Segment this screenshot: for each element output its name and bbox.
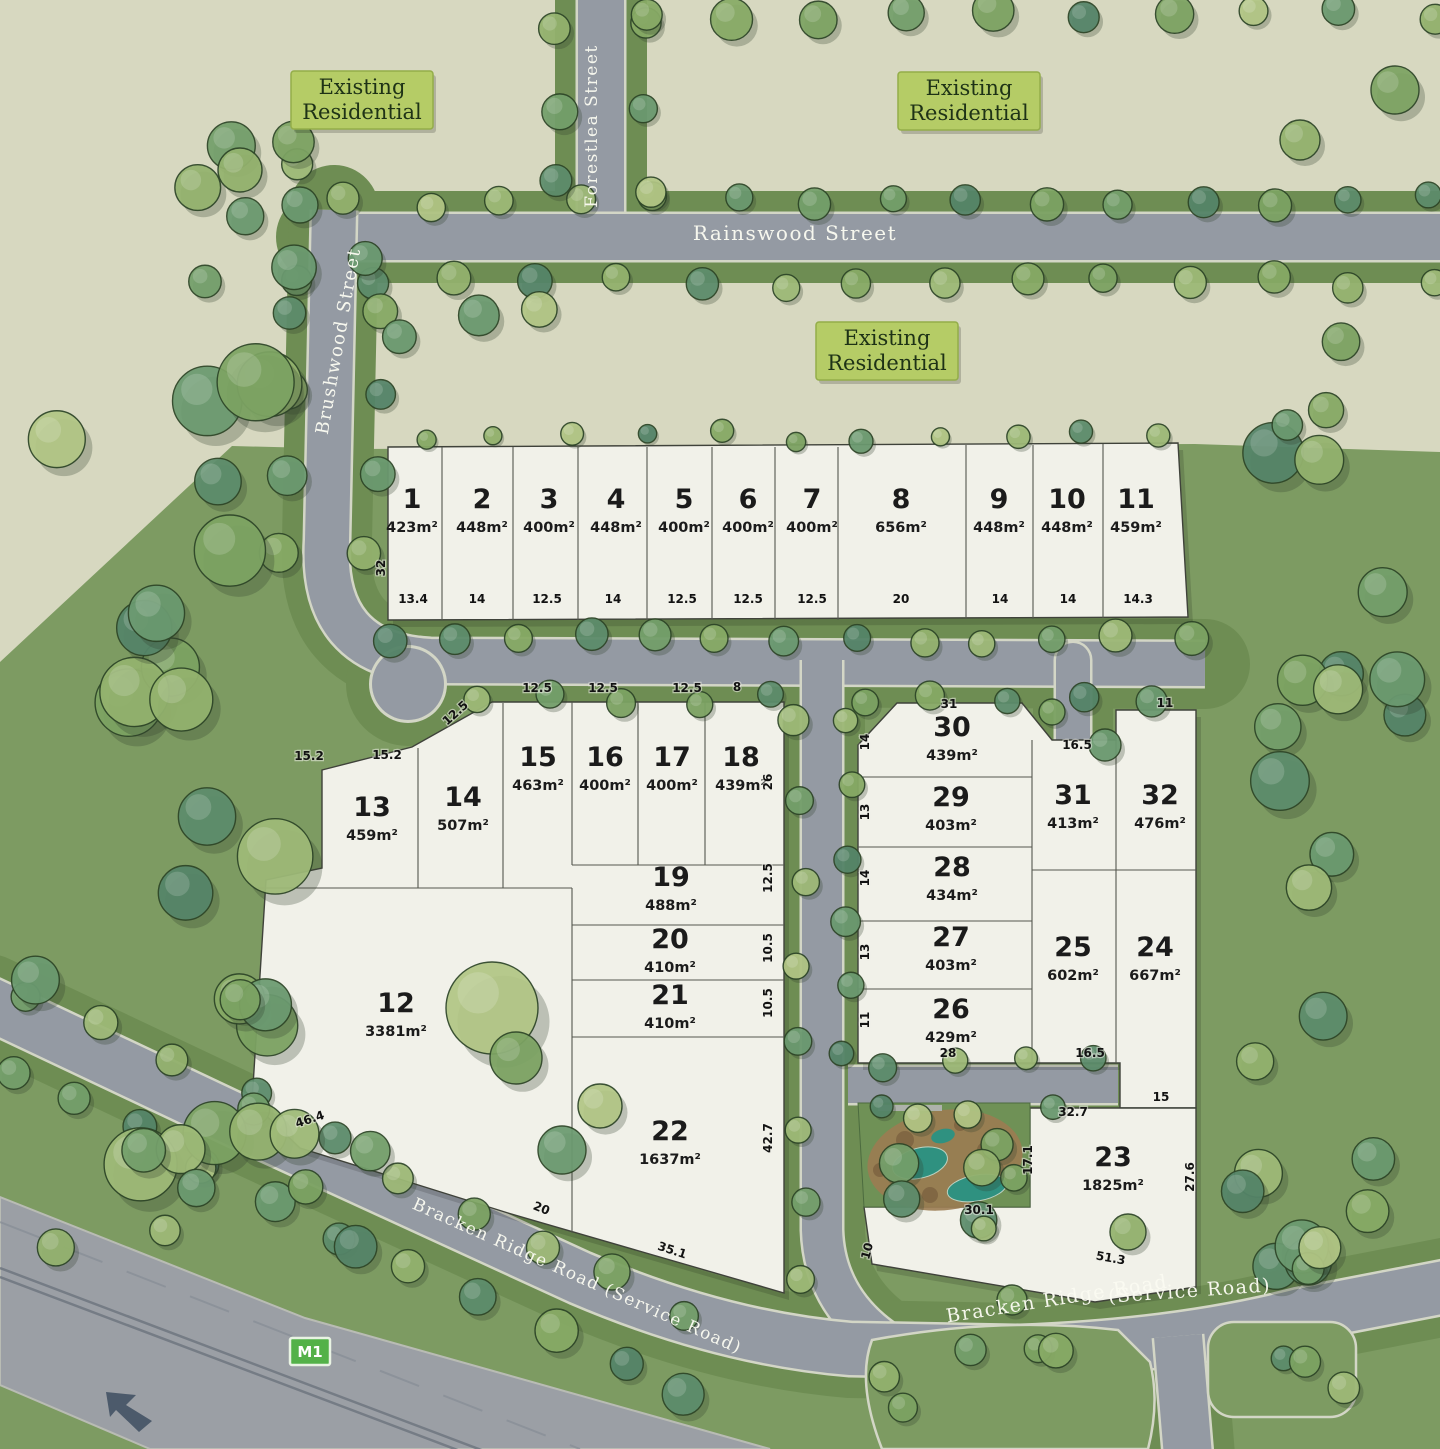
dimension-label: 13 xyxy=(858,944,872,961)
lot-area: 400m² xyxy=(786,520,838,536)
dimension-label: 14 xyxy=(605,592,622,606)
existing-residential-text: Existing xyxy=(926,76,1013,100)
lot-area: 448m² xyxy=(456,520,508,536)
lot-30-label: 30439m² xyxy=(926,712,978,764)
lot-number: 3 xyxy=(540,484,559,515)
lot-18-label: 18439m² xyxy=(715,742,767,794)
dimension-label: 10.5 xyxy=(761,988,775,1018)
dimension-label: 12.5 xyxy=(797,592,827,606)
lot-area: 1637m² xyxy=(639,1152,701,1168)
lot-area: 400m² xyxy=(722,520,774,536)
dimension-label: 11 xyxy=(1157,696,1174,710)
existing-residential-text: Existing xyxy=(844,326,931,350)
dimension-label: 12.5 xyxy=(761,863,775,893)
lot-32-label: 32476m² xyxy=(1134,780,1186,832)
lot-number: 7 xyxy=(803,484,822,515)
lot-area: 403m² xyxy=(925,818,977,834)
dimension-label: 26 xyxy=(761,774,775,791)
lot-area: 400m² xyxy=(646,778,698,794)
lot-number: 6 xyxy=(739,484,758,515)
lot-number: 12 xyxy=(377,988,415,1019)
lot-number: 30 xyxy=(933,712,971,743)
dimension-label: 31 xyxy=(941,697,958,711)
lot-number: 5 xyxy=(675,484,694,515)
lot-number: 17 xyxy=(653,742,691,773)
existing-residential-label: ExistingResidential xyxy=(291,71,436,133)
lot-area: 439m² xyxy=(715,778,767,794)
dimension-label: 14 xyxy=(469,592,486,606)
lot-area: 459m² xyxy=(346,828,398,844)
dimension-label: 15.2 xyxy=(372,748,402,762)
lot-area: 400m² xyxy=(579,778,631,794)
lot-10-label: 10448m² xyxy=(1041,484,1093,536)
lot-number: 14 xyxy=(444,782,482,813)
lot-number: 9 xyxy=(990,484,1009,515)
dimension-label: 42.7 xyxy=(761,1123,775,1153)
lot-number: 15 xyxy=(519,742,557,773)
dimension-label: 15 xyxy=(1153,1090,1170,1104)
lot-area: 459m² xyxy=(1110,520,1162,536)
dimension-label: 16.5 xyxy=(1075,1046,1105,1060)
lot-number: 2 xyxy=(473,484,492,515)
lot-area: 3381m² xyxy=(365,1024,427,1040)
dimension-label: 14 xyxy=(858,870,872,887)
lot-27-label: 27403m² xyxy=(925,922,977,974)
lot-area: 448m² xyxy=(1041,520,1093,536)
lot-area: 1825m² xyxy=(1082,1178,1144,1194)
lot-number: 11 xyxy=(1117,484,1155,515)
dimension-label: 12.5 xyxy=(588,681,618,695)
dimension-label: 12.5 xyxy=(667,592,697,606)
existing-residential-text: Residential xyxy=(827,351,947,375)
lot-number: 26 xyxy=(932,994,970,1025)
lot-11-label: 11459m² xyxy=(1110,484,1162,536)
lot-number: 16 xyxy=(586,742,624,773)
lot-number: 21 xyxy=(651,980,689,1011)
dimension-label: 12.5 xyxy=(733,592,763,606)
lot-number: 20 xyxy=(651,924,689,955)
dimension-label: 32.7 xyxy=(1058,1105,1088,1119)
lot-14-label: 14507m² xyxy=(437,782,489,834)
lot-area: 602m² xyxy=(1047,968,1099,984)
lot-number: 18 xyxy=(722,742,760,773)
road-branch-south xyxy=(1178,1336,1188,1449)
lot-area: 488m² xyxy=(645,898,697,914)
dimension-label: 27.6 xyxy=(1183,1162,1197,1192)
lot-area: 448m² xyxy=(973,520,1025,536)
lot-number: 1 xyxy=(403,484,422,515)
lot-number: 25 xyxy=(1054,932,1092,963)
lot-area: 434m² xyxy=(926,888,978,904)
lot-area: 439m² xyxy=(926,748,978,764)
existing-residential-text: Residential xyxy=(909,101,1029,125)
dimension-label: 30.1 xyxy=(964,1203,994,1217)
lot-number: 4 xyxy=(607,484,626,515)
dimension-label: 12.5 xyxy=(672,681,702,695)
dimension-label: 15.2 xyxy=(294,749,324,763)
existing-residential-label: ExistingResidential xyxy=(898,72,1043,134)
dimension-label: 16.5 xyxy=(1062,738,1092,752)
lot-21-label: 21410m² xyxy=(644,980,696,1032)
lot-area: 463m² xyxy=(512,778,564,794)
existing-residential-text: Existing xyxy=(319,75,406,99)
lot-20-label: 20410m² xyxy=(644,924,696,976)
dimension-label: 11 xyxy=(858,1012,872,1029)
dimension-label: 32 xyxy=(374,560,388,577)
lot-number: 8 xyxy=(892,484,911,515)
lot-area: 403m² xyxy=(925,958,977,974)
lot-25-label: 25602m² xyxy=(1047,932,1099,984)
lot-number: 19 xyxy=(652,862,690,893)
lot-area: 410m² xyxy=(644,960,696,976)
lot-number: 27 xyxy=(932,922,970,953)
dimension-label: 14.3 xyxy=(1123,592,1153,606)
lot-area: 400m² xyxy=(523,520,575,536)
dimension-label: 13 xyxy=(858,804,872,821)
dimension-label: 14 xyxy=(992,592,1009,606)
lot-number: 32 xyxy=(1141,780,1179,811)
dimension-label: 13.4 xyxy=(398,592,428,606)
existing-residential-label: ExistingResidential xyxy=(816,322,961,384)
lot-number: 29 xyxy=(932,782,970,813)
lot-16-label: 16400m² xyxy=(579,742,631,794)
lot-area: 507m² xyxy=(437,818,489,834)
lot-area: 448m² xyxy=(590,520,642,536)
lot-area: 656m² xyxy=(875,520,927,536)
lot-19-label: 19488m² xyxy=(645,862,697,914)
street-label: Forestlea Street xyxy=(582,44,602,207)
lot-26-label: 26429m² xyxy=(925,994,977,1046)
lot-number: 31 xyxy=(1054,780,1092,811)
dimension-label: 20 xyxy=(893,592,910,606)
lot-number: 13 xyxy=(353,792,391,823)
lot-number: 23 xyxy=(1094,1142,1132,1173)
lot-15-label: 15463m² xyxy=(512,742,564,794)
dimension-label: 12.5 xyxy=(522,681,552,695)
site-plan: ExistingResidentialExistingResidentialEx… xyxy=(0,0,1440,1449)
lot-area: 423m² xyxy=(386,520,438,536)
dimension-label: 10.5 xyxy=(761,933,775,963)
lot-area: 413m² xyxy=(1047,816,1099,832)
dimension-label: 12.5 xyxy=(532,592,562,606)
lot-area: 476m² xyxy=(1134,816,1186,832)
lot-area: 429m² xyxy=(925,1030,977,1046)
m1-badge-text: M1 xyxy=(297,1343,322,1361)
dimension-label: 14 xyxy=(858,734,872,751)
lot-28-label: 28434m² xyxy=(926,852,978,904)
dimension-label: 14 xyxy=(1060,592,1077,606)
dimension-label: 28 xyxy=(940,1046,957,1060)
site-plan-canvas: ExistingResidentialExistingResidentialEx… xyxy=(0,0,1440,1449)
street-label: Rainswood Street xyxy=(693,221,897,245)
lot-13-label: 13459m² xyxy=(346,792,398,844)
lot-number: 24 xyxy=(1136,932,1174,963)
dimension-label: 8 xyxy=(733,680,741,694)
lot-number: 22 xyxy=(651,1116,689,1147)
lot-17-label: 17400m² xyxy=(646,742,698,794)
lot-29-label: 29403m² xyxy=(925,782,977,834)
lot-area: 667m² xyxy=(1129,968,1181,984)
lot-number: 28 xyxy=(933,852,971,883)
lot-number: 10 xyxy=(1048,484,1086,515)
dimension-label: 17.1 xyxy=(1021,1145,1035,1175)
existing-residential-text: Residential xyxy=(302,100,422,124)
m1-badge: M1 xyxy=(290,1338,330,1365)
lot-24-label: 24667m² xyxy=(1129,932,1181,984)
lot-area: 410m² xyxy=(644,1016,696,1032)
lot-area: 400m² xyxy=(658,520,710,536)
lot-31-label: 31413m² xyxy=(1047,780,1099,832)
